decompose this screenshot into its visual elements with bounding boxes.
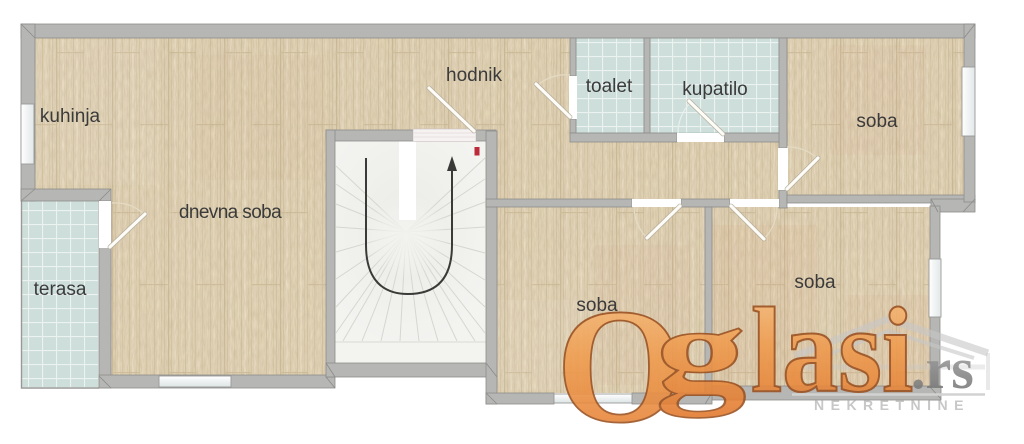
svg-text:kuhinja: kuhinja: [40, 106, 101, 127]
svg-text:terasa: terasa: [34, 279, 87, 300]
svg-text:dnevna soba: dnevna soba: [179, 202, 282, 223]
svg-text:toalet: toalet: [586, 76, 633, 97]
svg-text:soba: soba: [856, 111, 898, 132]
svg-text:hodnik: hodnik: [446, 65, 502, 86]
svg-text:lasi: lasi: [751, 284, 913, 418]
svg-text:kupatilo: kupatilo: [682, 79, 748, 100]
svg-text:.rs: .rs: [911, 336, 974, 401]
svg-text:g: g: [655, 282, 747, 418]
